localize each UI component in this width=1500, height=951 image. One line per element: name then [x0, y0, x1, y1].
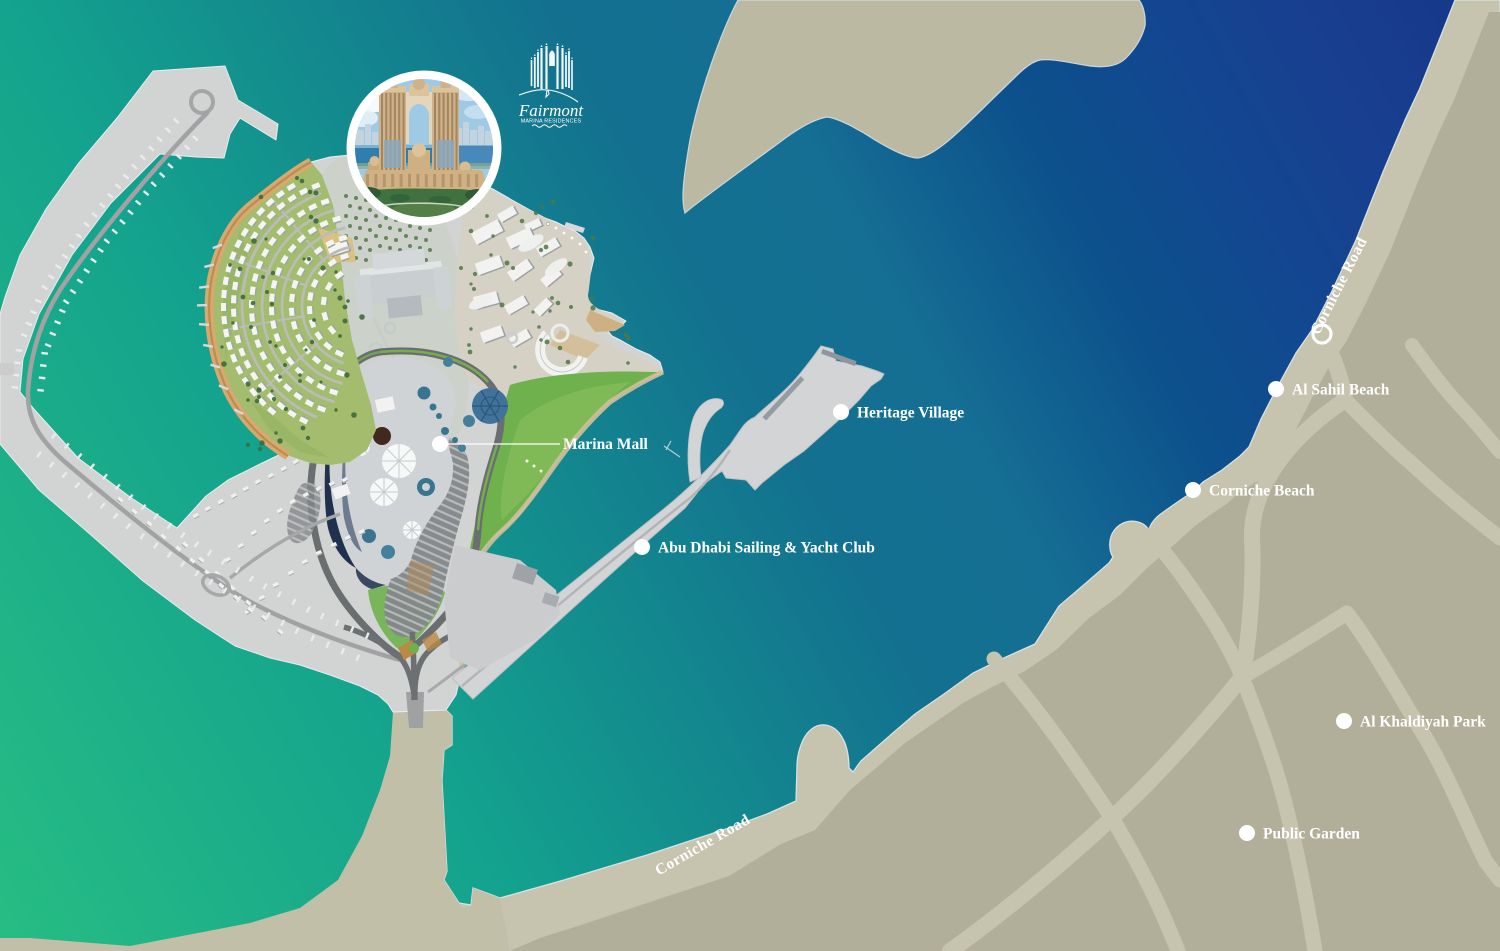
svg-text:Al Sahil Beach: Al Sahil Beach: [1292, 382, 1390, 399]
svg-text:Public Garden: Public Garden: [1263, 826, 1360, 843]
svg-text:Al Khaldiyah Park: Al Khaldiyah Park: [1360, 714, 1486, 731]
svg-text:Abu Dhabi Sailing & Yacht Club: Abu Dhabi Sailing & Yacht Club: [658, 540, 875, 557]
svg-text:Heritage Village: Heritage Village: [857, 405, 964, 422]
svg-text:MARINA RESIDENCES: MARINA RESIDENCES: [521, 119, 582, 125]
svg-text:Fairmont: Fairmont: [518, 101, 585, 120]
svg-text:Corniche Beach: Corniche Beach: [1209, 483, 1315, 500]
svg-text:Marina Mall: Marina Mall: [563, 436, 648, 453]
